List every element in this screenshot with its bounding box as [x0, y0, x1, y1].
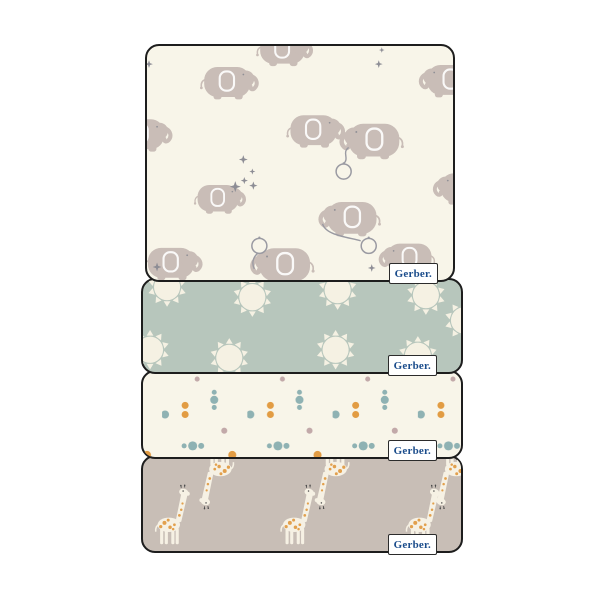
- gerber-logo-text: Gerber.: [394, 539, 431, 551]
- elephant-pattern: [147, 46, 453, 280]
- gerber-logo-badge: Gerber.: [388, 534, 437, 555]
- blanket-panel-dots: Gerber.: [141, 370, 463, 459]
- gerber-logo-text: Gerber.: [394, 360, 431, 372]
- elephant-pattern-svg: [147, 46, 453, 280]
- product-image: Gerber. Gerber.: [0, 0, 600, 600]
- gerber-logo-text: Gerber.: [395, 268, 432, 280]
- blanket-panel-elephants: Gerber.: [145, 44, 455, 282]
- gerber-logo-badge: Gerber.: [388, 440, 437, 461]
- gerber-logo-badge: Gerber.: [389, 263, 438, 284]
- blanket-panel-suns: Gerber.: [141, 278, 463, 374]
- blanket-panel-giraffes: Gerber.: [141, 455, 463, 553]
- gerber-logo-text: Gerber.: [394, 445, 431, 457]
- gerber-logo-badge: Gerber.: [388, 355, 437, 376]
